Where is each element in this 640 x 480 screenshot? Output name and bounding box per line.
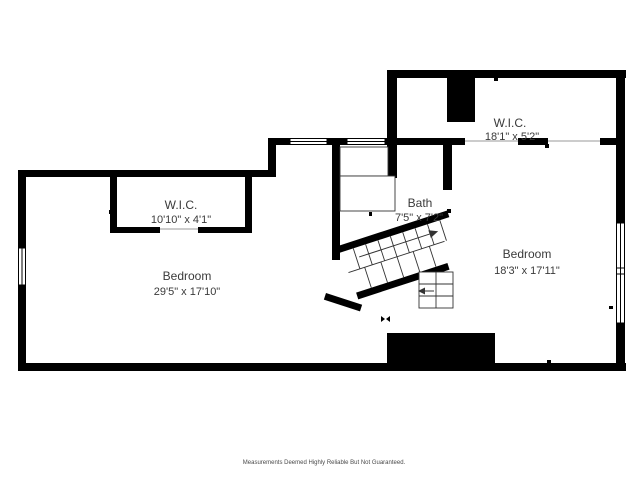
room-label-wic-right: W.I.C.	[494, 116, 527, 130]
bath-fixtures	[340, 147, 395, 211]
windows	[19, 139, 625, 324]
wic1-bottom-a	[110, 227, 160, 233]
wall-bottom	[18, 363, 626, 371]
floorplan-drawing: W.I.C. 10'10" x 4'1" Bedroom 29'5" x 17'…	[0, 0, 640, 480]
room-dims-bedroom-left: 29'5" x 17'10"	[154, 286, 221, 298]
wic1-right-wall	[245, 177, 252, 233]
room-label-wic-left: W.I.C.	[165, 198, 198, 212]
window-left	[19, 248, 26, 285]
stair-winder-box	[418, 272, 453, 308]
door-marker	[609, 306, 613, 309]
shower-fixture	[340, 147, 388, 176]
wall-top-right	[387, 70, 626, 78]
wall-left-upper	[18, 170, 26, 248]
wic2-wall-a	[397, 138, 465, 145]
stair-stub-wall	[324, 293, 362, 311]
window-top-2	[347, 139, 385, 145]
wall-right-lower	[616, 323, 625, 371]
door-marker	[447, 209, 451, 213]
wall-left-lower	[18, 285, 26, 371]
stair-left-wall	[332, 145, 340, 260]
door-marker	[23, 315, 26, 319]
wall-right-upper	[616, 70, 625, 223]
vanity-fixture	[340, 176, 395, 211]
wall-upper-section-left	[387, 70, 397, 178]
door-marker	[109, 210, 113, 214]
wall-top-left	[18, 170, 276, 177]
door-marker	[245, 210, 249, 214]
bath-right-wall	[443, 145, 452, 190]
opening-marker	[381, 316, 385, 322]
window-top-1	[290, 139, 327, 145]
room-dims-bath: 7'5" x 7'2"	[395, 212, 443, 224]
chase-block	[447, 78, 475, 122]
wic2-wall-c	[600, 138, 616, 145]
room-dims-wic-right: 18'1" x 5'2"	[485, 131, 539, 143]
staircase	[324, 210, 465, 311]
room-label-bedroom-right: Bedroom	[503, 247, 552, 261]
room-label-bedroom-left: Bedroom	[163, 269, 212, 283]
door-marker	[369, 212, 372, 216]
door-marker	[545, 144, 549, 148]
window-right	[617, 223, 625, 323]
room-dims-bedroom-right: 18'3" x 17'11"	[494, 265, 560, 277]
wall-seg-b	[327, 138, 347, 145]
wic1-bottom-b	[198, 227, 252, 233]
floorplan-page: W.I.C. 10'10" x 4'1" Bedroom 29'5" x 17'…	[0, 0, 640, 480]
wic1-left-wall	[110, 177, 117, 233]
walls	[18, 70, 626, 371]
opening-marker	[386, 316, 390, 322]
chimney-block	[387, 333, 495, 364]
room-label-bath: Bath	[408, 196, 433, 210]
disclaimer-text: Measurements Deemed Highly Reliable But …	[243, 460, 406, 466]
room-dims-wic-left: 10'10" x 4'1"	[151, 214, 211, 226]
wall-seg-a	[276, 138, 290, 145]
door-marker	[547, 360, 551, 363]
door-marker	[494, 78, 498, 81]
wall-jog	[268, 138, 276, 177]
